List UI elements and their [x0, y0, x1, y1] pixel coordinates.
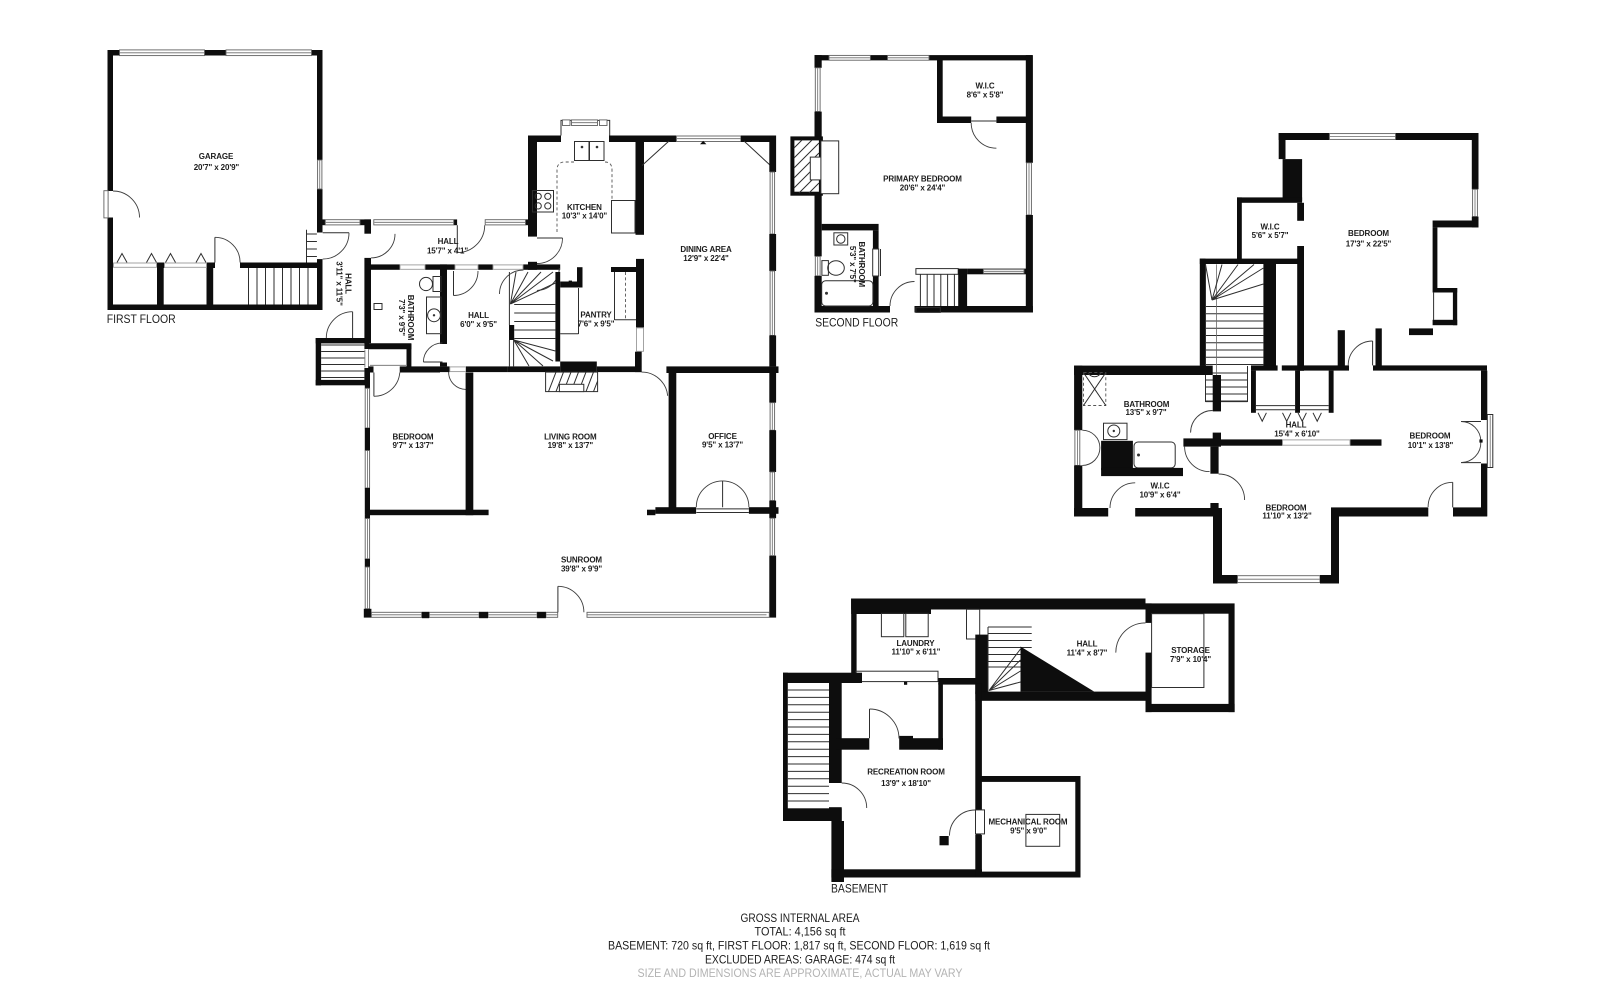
svg-text:RECREATION ROOM: RECREATION ROOM [867, 767, 945, 776]
svg-text:MECHANICAL ROOM: MECHANICAL ROOM [989, 817, 1068, 826]
svg-text:BEDROOM: BEDROOM [1348, 229, 1389, 238]
svg-text:FIRST FLOOR: FIRST FLOOR [107, 314, 176, 326]
svg-text:13'9" x 18'10": 13'9" x 18'10" [881, 779, 931, 788]
svg-text:13'5" x 9'7": 13'5" x 9'7" [1125, 408, 1166, 417]
svg-text:9'7" x 13'7": 9'7" x 13'7" [392, 441, 433, 450]
svg-text:BASEMENT: 720 sq ft, FIRST FLO: BASEMENT: 720 sq ft, FIRST FLOOR: 1,817 … [608, 939, 991, 953]
svg-text:HALL: HALL [1286, 420, 1307, 429]
svg-text:EXCLUDED AREAS: GARAGE: 474 sq: EXCLUDED AREAS: GARAGE: 474 sq ft [705, 953, 896, 967]
svg-text:SECOND FLOOR: SECOND FLOOR [815, 317, 898, 329]
svg-text:SIZE AND DIMENSIONS ARE APPROX: SIZE AND DIMENSIONS ARE APPROXIMATE, ACT… [638, 966, 963, 980]
svg-text:SUNROOM: SUNROOM [561, 556, 602, 565]
svg-text:DINING AREA: DINING AREA [680, 245, 732, 254]
svg-text:10'1" x 13'8": 10'1" x 13'8" [1408, 441, 1454, 450]
svg-text:BEDROOM: BEDROOM [1410, 431, 1451, 440]
svg-text:10'3" x 14'0": 10'3" x 14'0" [562, 211, 608, 220]
svg-text:PANTRY: PANTRY [580, 310, 612, 319]
svg-text:BATHROOM: BATHROOM [406, 295, 415, 341]
svg-text:6'0" x 9'5": 6'0" x 9'5" [460, 320, 497, 329]
svg-text:17'3" x 22'5": 17'3" x 22'5" [1346, 240, 1392, 249]
svg-text:9'5" x 9'0": 9'5" x 9'0" [1010, 826, 1047, 835]
svg-text:8'6" x 5'8": 8'6" x 5'8" [967, 90, 1004, 99]
svg-text:9'5" x 13'7": 9'5" x 13'7" [702, 441, 743, 450]
svg-text:39'8" x 9'9": 39'8" x 9'9" [561, 565, 602, 574]
svg-text:LIVING ROOM: LIVING ROOM [544, 432, 597, 441]
svg-text:5'3" x 7'5": 5'3" x 7'5" [848, 246, 857, 283]
svg-text:HALL: HALL [1077, 639, 1098, 648]
svg-text:11'4" x 8'7": 11'4" x 8'7" [1067, 648, 1108, 657]
svg-text:GARAGE: GARAGE [199, 152, 234, 161]
svg-text:10'9" x 6'4": 10'9" x 6'4" [1139, 490, 1180, 499]
svg-text:GROSS INTERNAL AREA: GROSS INTERNAL AREA [741, 911, 860, 925]
svg-text:7'3" x 9'5": 7'3" x 9'5" [397, 299, 406, 336]
svg-text:BATHROOM: BATHROOM [857, 242, 866, 288]
svg-text:11'10" x 13'2": 11'10" x 13'2" [1262, 512, 1312, 521]
svg-text:TOTAL: 4,156 sq ft: TOTAL: 4,156 sq ft [755, 925, 847, 939]
svg-text:W.I.C: W.I.C [976, 81, 995, 90]
svg-text:7'6" x 9'5": 7'6" x 9'5" [578, 319, 615, 328]
svg-text:W.I.C: W.I.C [1151, 481, 1170, 490]
svg-text:OFFICE: OFFICE [708, 432, 737, 441]
svg-text:15'7" x 4'1": 15'7" x 4'1" [427, 246, 468, 255]
svg-text:BASEMENT: BASEMENT [831, 883, 888, 895]
svg-text:W.I.C: W.I.C [1261, 222, 1280, 231]
svg-text:20'7" x 20'9": 20'7" x 20'9" [194, 163, 240, 172]
svg-text:5'6" x 5'7": 5'6" x 5'7" [1252, 231, 1289, 240]
svg-text:BEDROOM: BEDROOM [393, 432, 434, 441]
svg-text:HALL: HALL [438, 237, 459, 246]
svg-text:11'10" x 6'11": 11'10" x 6'11" [891, 647, 940, 656]
svg-text:7'9" x 10'4": 7'9" x 10'4" [1170, 655, 1211, 664]
svg-text:HALL: HALL [344, 273, 353, 294]
svg-text:HALL: HALL [468, 311, 489, 320]
svg-text:STORAGE: STORAGE [1171, 646, 1210, 655]
svg-text:PRIMARY BEDROOM: PRIMARY BEDROOM [883, 174, 962, 183]
svg-text:20'6" x 24'4": 20'6" x 24'4" [900, 184, 946, 193]
svg-text:19'8" x 13'7": 19'8" x 13'7" [548, 441, 594, 450]
svg-text:15'4" x 6'10": 15'4" x 6'10" [1274, 429, 1320, 438]
svg-text:3'11" x 11'5": 3'11" x 11'5" [335, 261, 344, 306]
svg-text:12'9" x 22'4": 12'9" x 22'4" [683, 254, 729, 263]
